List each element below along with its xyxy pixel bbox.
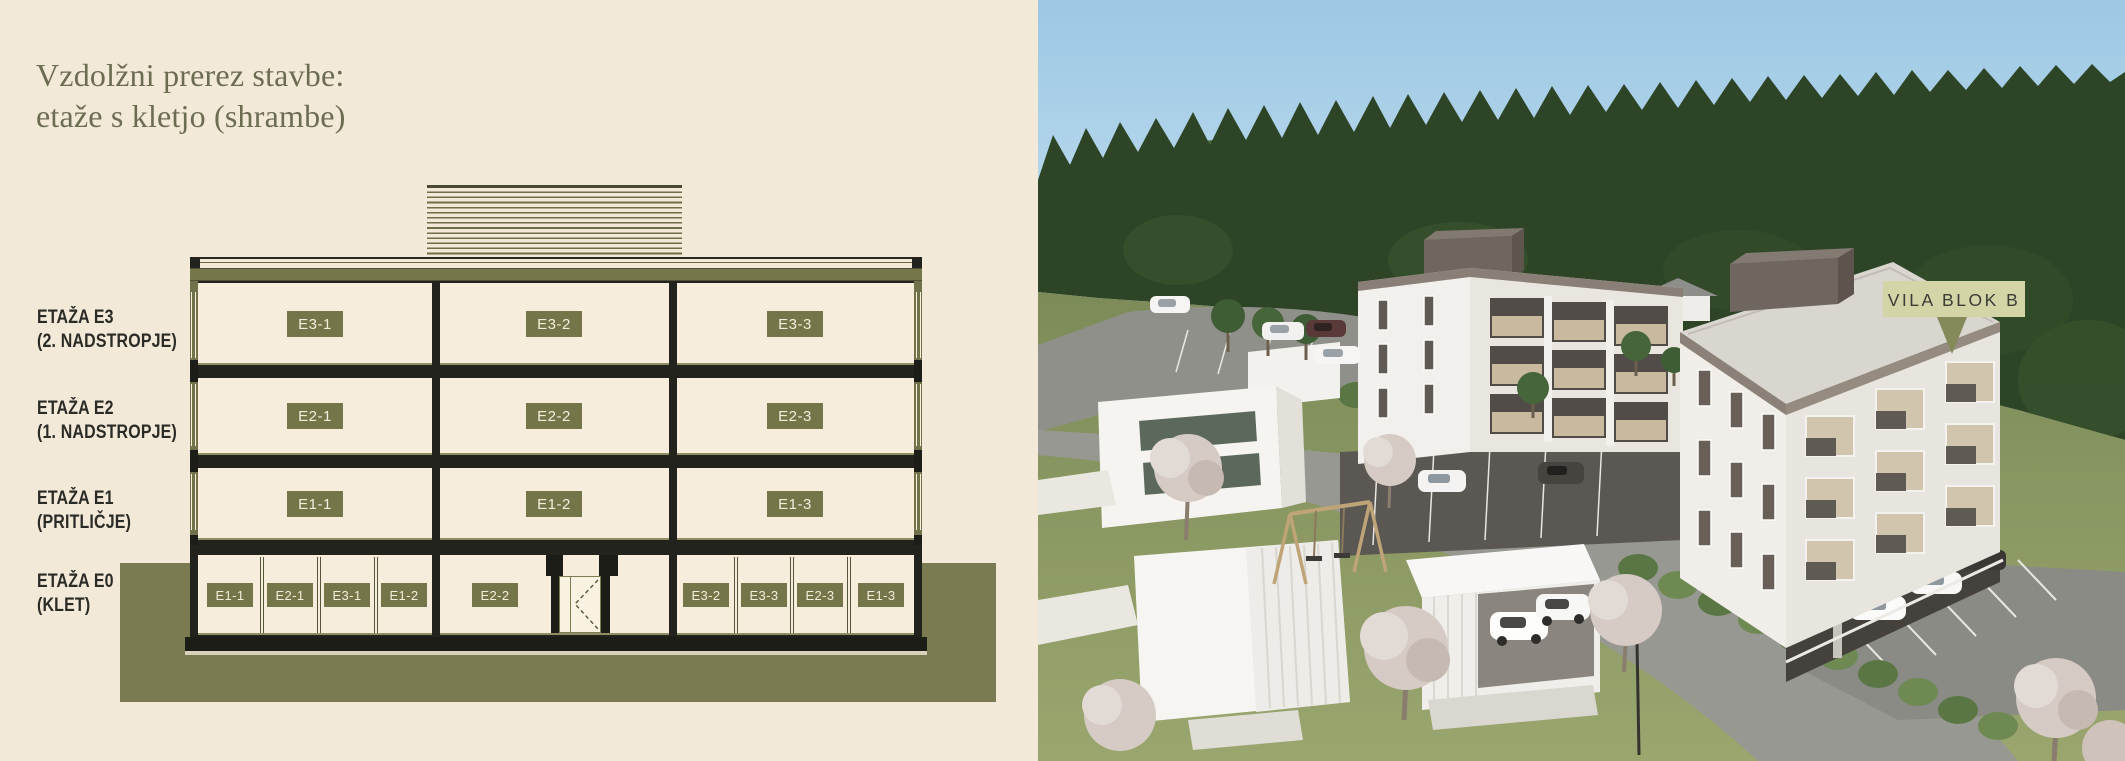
section-panel: Vzdolžni prerez stavbe: etaže s kletjo (…: [0, 0, 1038, 761]
cellar-partition: [790, 557, 794, 633]
roof-vent-grille: [427, 185, 682, 255]
car: [1418, 470, 1466, 492]
cellar-partition: [260, 557, 264, 633]
storage-badge: E1-1: [207, 583, 253, 607]
unit-badge: E3-3: [767, 311, 823, 337]
storage-badge: E1-2: [381, 583, 427, 607]
car: [1538, 462, 1584, 484]
foreground-house-2: [1134, 540, 1350, 722]
cellar-partition: [317, 557, 321, 633]
roof-slab: [190, 268, 922, 281]
page: Vzdolžni prerez stavbe: etaže s kletjo (…: [0, 0, 2125, 761]
parapet-line: [190, 257, 922, 259]
title-line-1: Vzdolžni prerez stavbe:: [36, 55, 346, 96]
cellar-partition: [734, 557, 738, 633]
unit-badge: E3-1: [287, 311, 343, 337]
unit-badge: E2-3: [767, 403, 823, 429]
unit-badge: E3-2: [526, 311, 582, 337]
window-strip: [916, 474, 921, 530]
door-swing-icon: [572, 578, 600, 631]
unit-badge: E1-2: [526, 491, 582, 517]
page-title: Vzdolžni prerez stavbe: etaže s kletjo (…: [36, 55, 346, 137]
window-strip: [191, 292, 196, 358]
storage-badge: E3-1: [324, 583, 370, 607]
floor-label-e2: ETAŽA E2 (1. NADSTROPJE): [37, 397, 177, 445]
cellar-partition: [374, 557, 378, 633]
building-a-balconies: [1490, 296, 1668, 446]
storage-badge: E3-3: [741, 583, 787, 607]
cellar-partition: [847, 557, 851, 633]
storage-badge: E2-3: [797, 583, 843, 607]
unit-badge: E2-1: [287, 403, 343, 429]
floor-label-e3: ETAŽA E3 (2. NADSTROPJE): [37, 306, 177, 354]
unit-badge: E2-2: [526, 403, 582, 429]
window-strip: [916, 292, 921, 358]
unit-badge: E1-3: [767, 491, 823, 517]
storage-badge: E1-3: [858, 583, 904, 607]
window-strip: [191, 384, 196, 446]
unit-badge: E1-1: [287, 491, 343, 517]
site-render: VILA BLOK B: [1038, 0, 2125, 761]
window-strip: [191, 474, 196, 530]
title-line-2: etaže s kletjo (shrambe): [36, 96, 346, 137]
building-b-label-text: VILA BLOK B: [1888, 290, 2021, 310]
storage-badge: E3-2: [683, 583, 729, 607]
foundation-slab: [185, 637, 927, 651]
floor-label-e1: ETAŽA E1 (PRITLIČJE): [37, 487, 131, 535]
building-a-west-facade: [1358, 268, 1470, 464]
storage-badge: E2-1: [267, 583, 313, 607]
window-strip: [916, 384, 921, 446]
storage-badge: E2-2: [472, 583, 518, 607]
floor-label-e0: ETAŽA E0 (KLET): [37, 570, 114, 618]
